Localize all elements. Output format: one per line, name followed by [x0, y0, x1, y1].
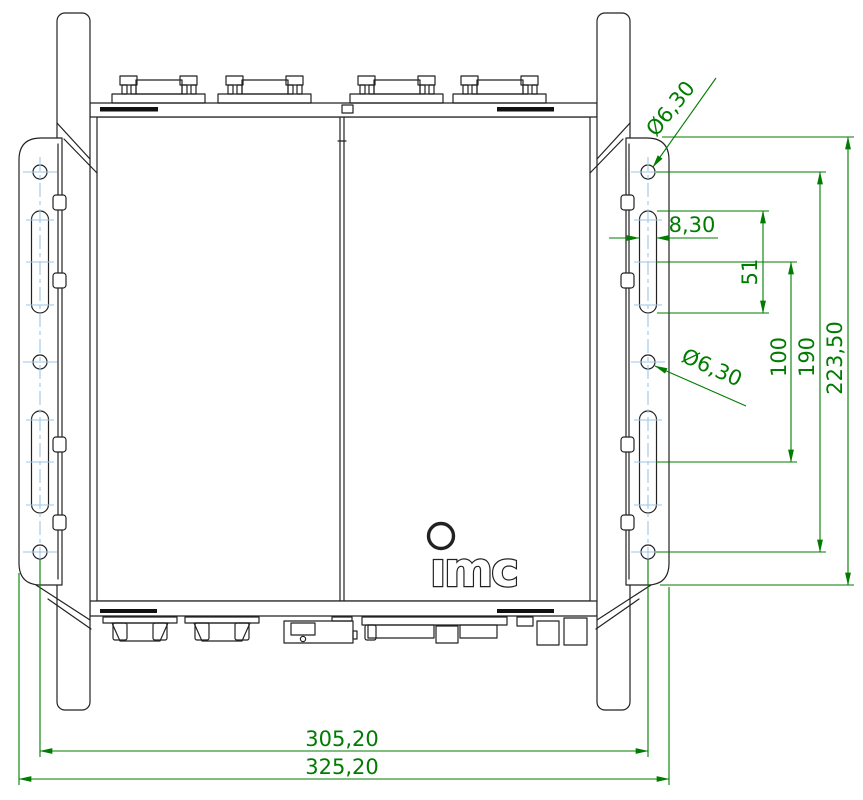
dimension-overall-width: 325,20 [19, 755, 669, 779]
dimension-hole-distance: 190 [795, 172, 820, 552]
bottom-vent-right [497, 609, 554, 613]
dim-label-hole-span: 305,20 [305, 727, 378, 751]
dimension-slot-distance: 100 [767, 262, 791, 462]
top-connector [350, 76, 443, 103]
drawing-canvas: ımc [0, 0, 863, 800]
dimension-hole-span: 305,20 [40, 727, 648, 751]
bracket-clip [53, 515, 66, 530]
dimension-slot-length: 51 [738, 211, 763, 313]
dim-label-middle-hole-diameter: Ø6,30 [678, 344, 746, 392]
dim-label-overall-width: 325,20 [305, 755, 378, 779]
top-connector [218, 76, 311, 103]
dim-label-slot-distance: 100 [767, 337, 791, 377]
bracket-clip [621, 195, 634, 210]
bracket-clip [53, 437, 66, 452]
top-connector [453, 76, 546, 103]
dim-label-slot-length: 51 [738, 259, 762, 286]
top-connector-row [112, 76, 546, 103]
bracket-clip [53, 273, 66, 288]
bracket-clip [621, 515, 634, 530]
dimension-bracket-height: 223,50 [823, 137, 848, 585]
top-vent-left [100, 107, 158, 112]
device-dimension-drawing: ımc [0, 0, 863, 800]
dim-label-slot-width: 8,30 [669, 213, 716, 237]
dim-label-top-hole-diameter: Ø6,30 [641, 76, 699, 140]
bottom-connector-row [103, 617, 587, 645]
imc-logo-text: ımc [430, 543, 517, 598]
top-connector [112, 76, 205, 103]
top-vent-right [497, 107, 554, 112]
bottom-plate [90, 601, 597, 616]
dsub-connector [185, 617, 259, 641]
bracket-clip [621, 437, 634, 452]
power-connector [284, 617, 357, 643]
bracket-clip [53, 195, 66, 210]
dim-label-hole-distance: 190 [795, 337, 819, 377]
right-rail [597, 13, 630, 710]
device-body [90, 103, 597, 616]
dim-label-bracket-height: 223,50 [823, 321, 847, 394]
bracket-clip [621, 273, 634, 288]
dsub-connector [103, 617, 177, 641]
bottom-vent-left [100, 609, 157, 613]
io-connector-group [362, 617, 587, 645]
top-plate-center-notch [342, 105, 353, 113]
